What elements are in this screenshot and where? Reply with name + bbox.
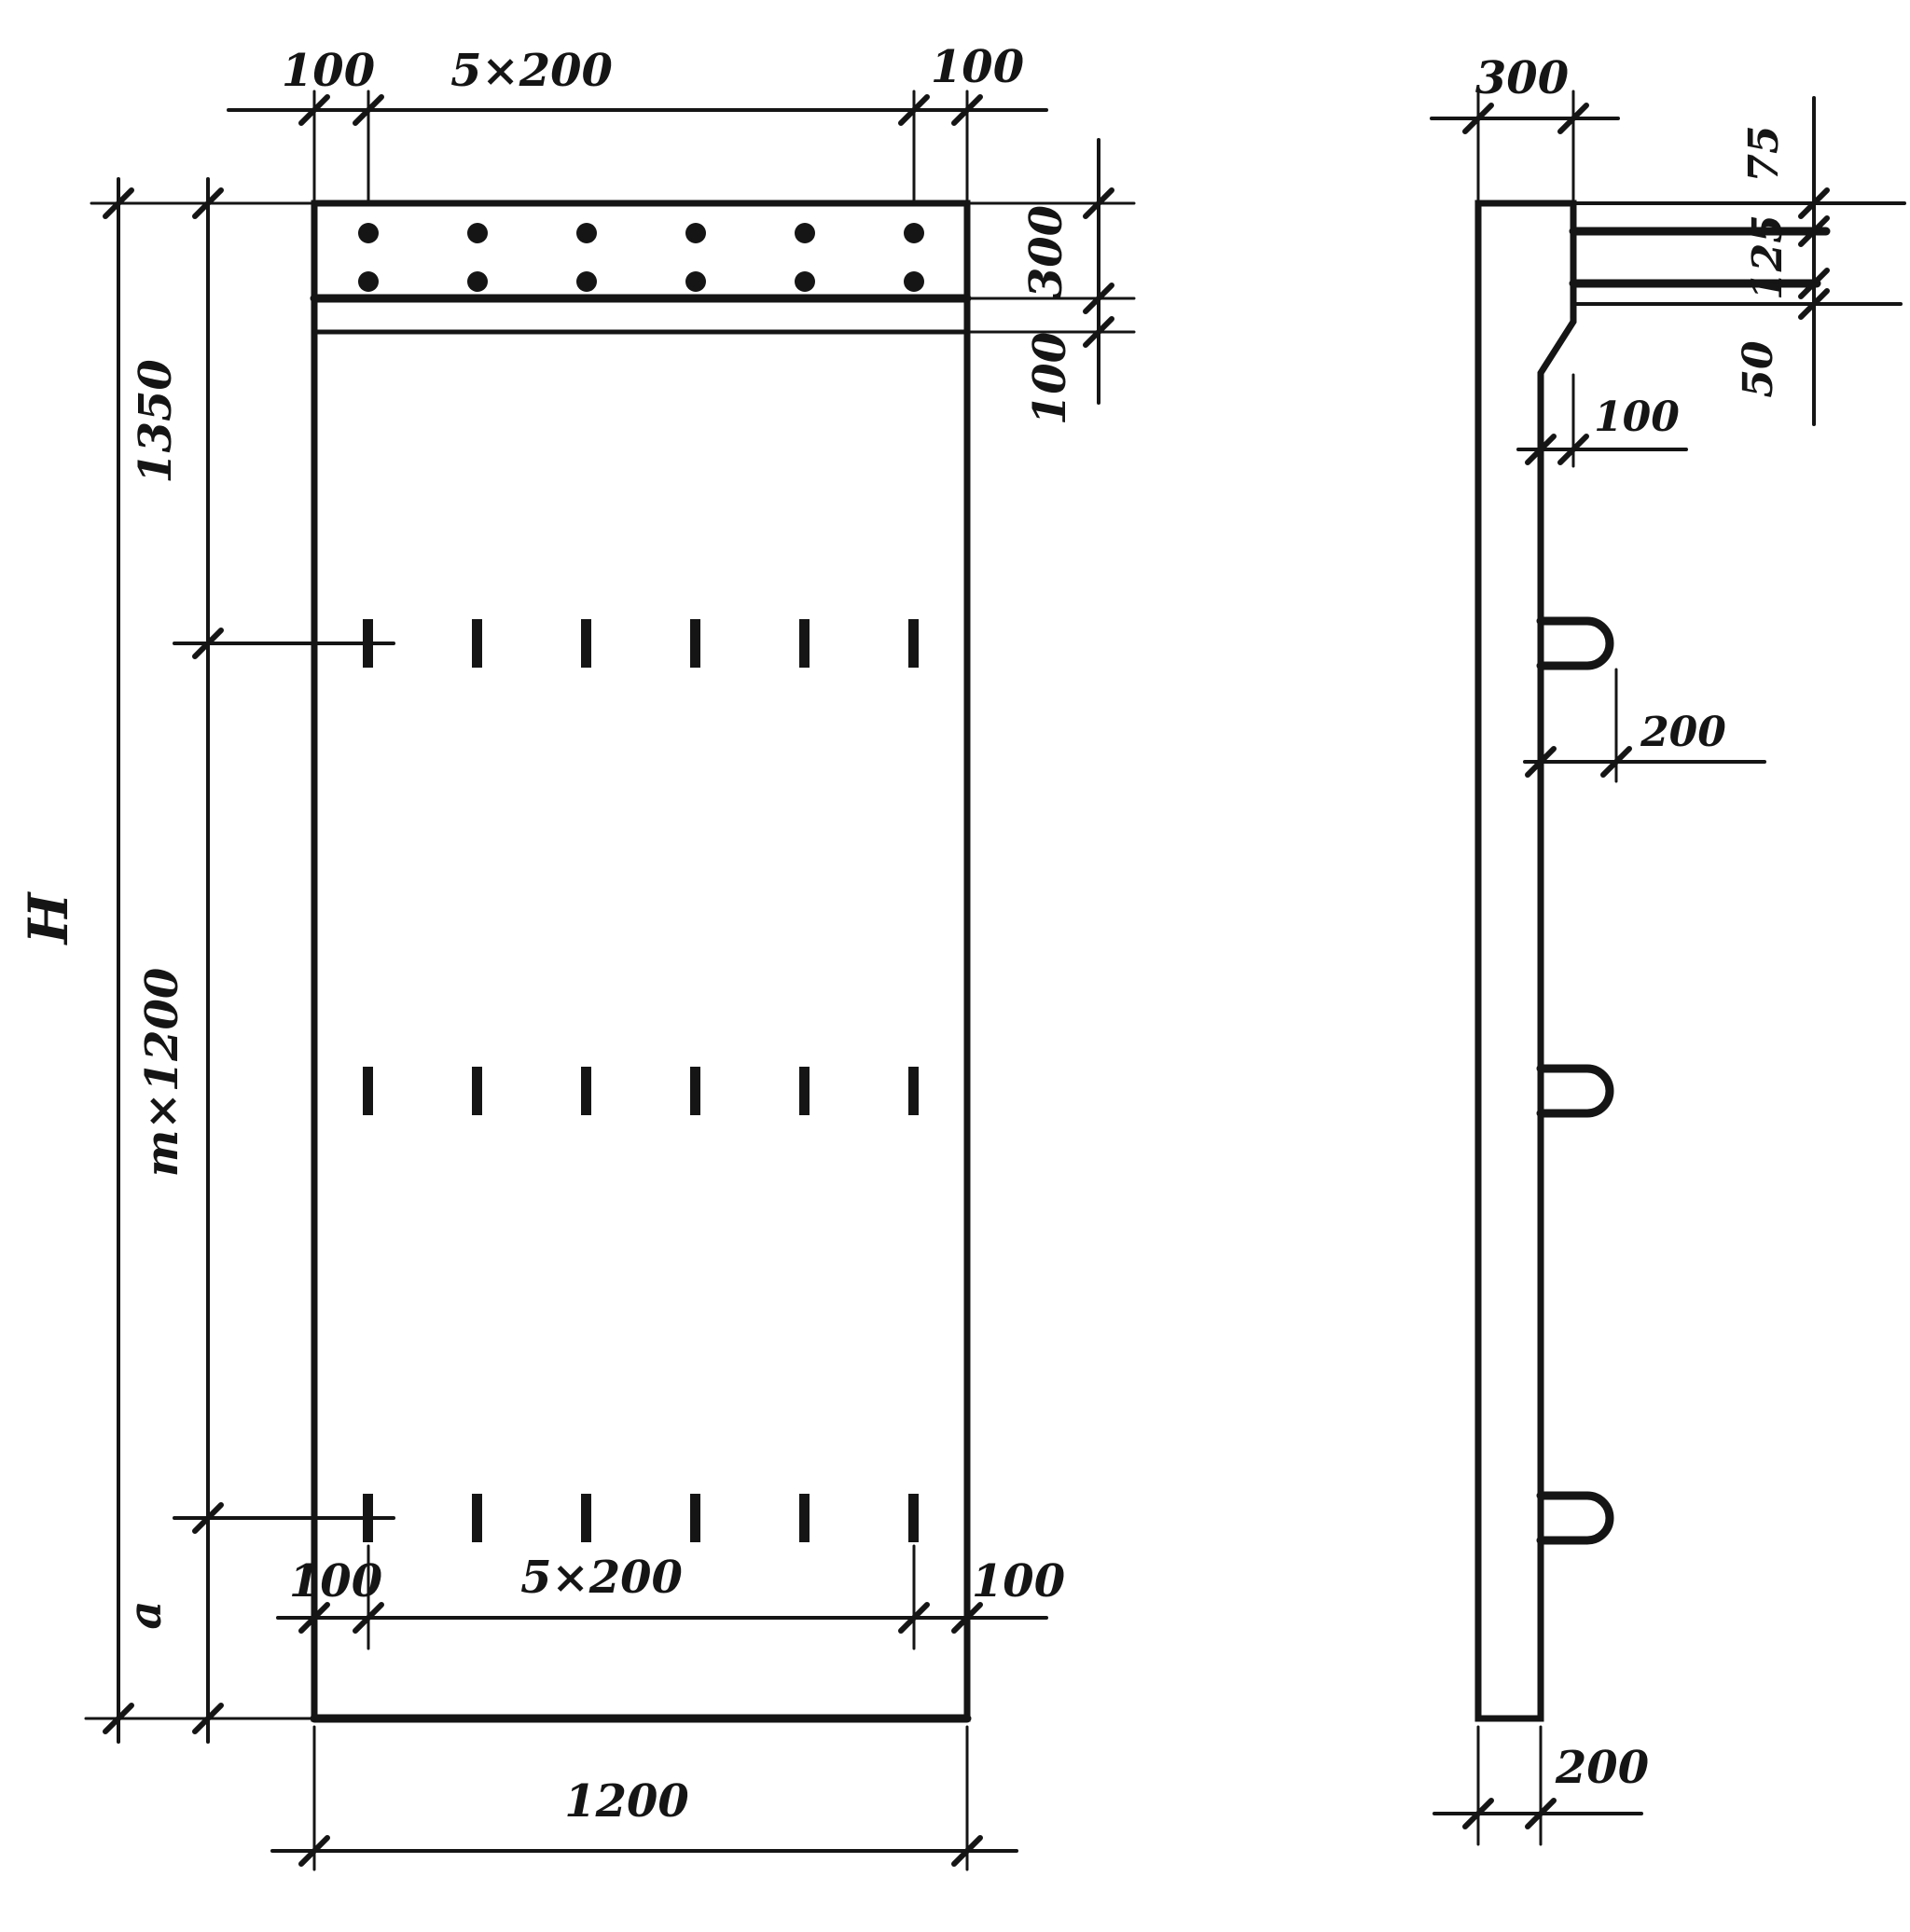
- side-profile-outline: [1478, 203, 1573, 1718]
- anchor-dots: [358, 223, 924, 292]
- dim-side-loop-projection: 200: [1640, 709, 1726, 756]
- dim-front-strip-height: 100: [1024, 332, 1076, 425]
- front-bottom-inner-dimension: 100 5×200 100: [278, 1546, 1065, 1649]
- drawing-sheet: 100 5×200 100 300 100: [0, 0, 1910, 1932]
- dim-side-dowel-second: 125: [1744, 214, 1792, 300]
- front-right-dimension: 300 100: [967, 140, 1134, 425]
- dowel-bars: [1573, 203, 1904, 304]
- panel-working-drawing: 100 5×200 100 300 100: [0, 0, 1910, 1932]
- dim-front-overall-height: H: [17, 890, 80, 945]
- dim-front-bottom-segment: a: [119, 1600, 172, 1629]
- loop-top: [1541, 621, 1610, 666]
- dim-front-bottom-spacing: 5×200: [520, 1552, 683, 1604]
- loop-middle: [1541, 1069, 1610, 1113]
- dim-side-dowel-first: 75: [1740, 125, 1788, 182]
- tie-dash-rows: [363, 619, 919, 1542]
- panel-outline: [314, 203, 967, 1718]
- side-loop-dimension: 200: [1525, 669, 1765, 781]
- dim-side-dowel-third: 50: [1735, 340, 1782, 398]
- dim-front-top-segment: 1350: [130, 359, 182, 484]
- front-view: 100 5×200 100 300 100: [17, 41, 1134, 1870]
- dim-side-thickness: 200: [1555, 1742, 1649, 1794]
- dim-front-overall-width: 1200: [564, 1775, 689, 1828]
- side-top-dimension: 300: [1432, 52, 1618, 201]
- dim-front-bottom-right: 100: [972, 1555, 1065, 1608]
- dim-side-top-width: 300: [1475, 52, 1569, 104]
- dim-front-bottom-left: 100: [289, 1555, 382, 1608]
- side-view: 75 125 50 300 100: [1432, 52, 1904, 1844]
- front-width-dimension: 1200: [272, 1727, 1017, 1870]
- side-thickness-dimension: 200: [1434, 1727, 1649, 1844]
- side-dowel-dimension: 75 125 50: [1735, 98, 1827, 424]
- dim-front-cap-height: 300: [1020, 205, 1073, 298]
- dim-front-top-spacing: 5×200: [450, 45, 613, 97]
- front-left-dimension: 1350 m×1200 a H: [17, 179, 394, 1742]
- dim-side-ledge-depth: 100: [1594, 393, 1680, 441]
- dim-front-top-right: 100: [931, 41, 1024, 93]
- lifting-loops: [1541, 621, 1610, 1540]
- dim-front-top-left: 100: [282, 45, 375, 97]
- dim-front-middle-segment: m×1200: [136, 968, 188, 1178]
- front-top-dimension: 100 5×200 100: [228, 41, 1046, 201]
- loop-bottom: [1541, 1496, 1610, 1540]
